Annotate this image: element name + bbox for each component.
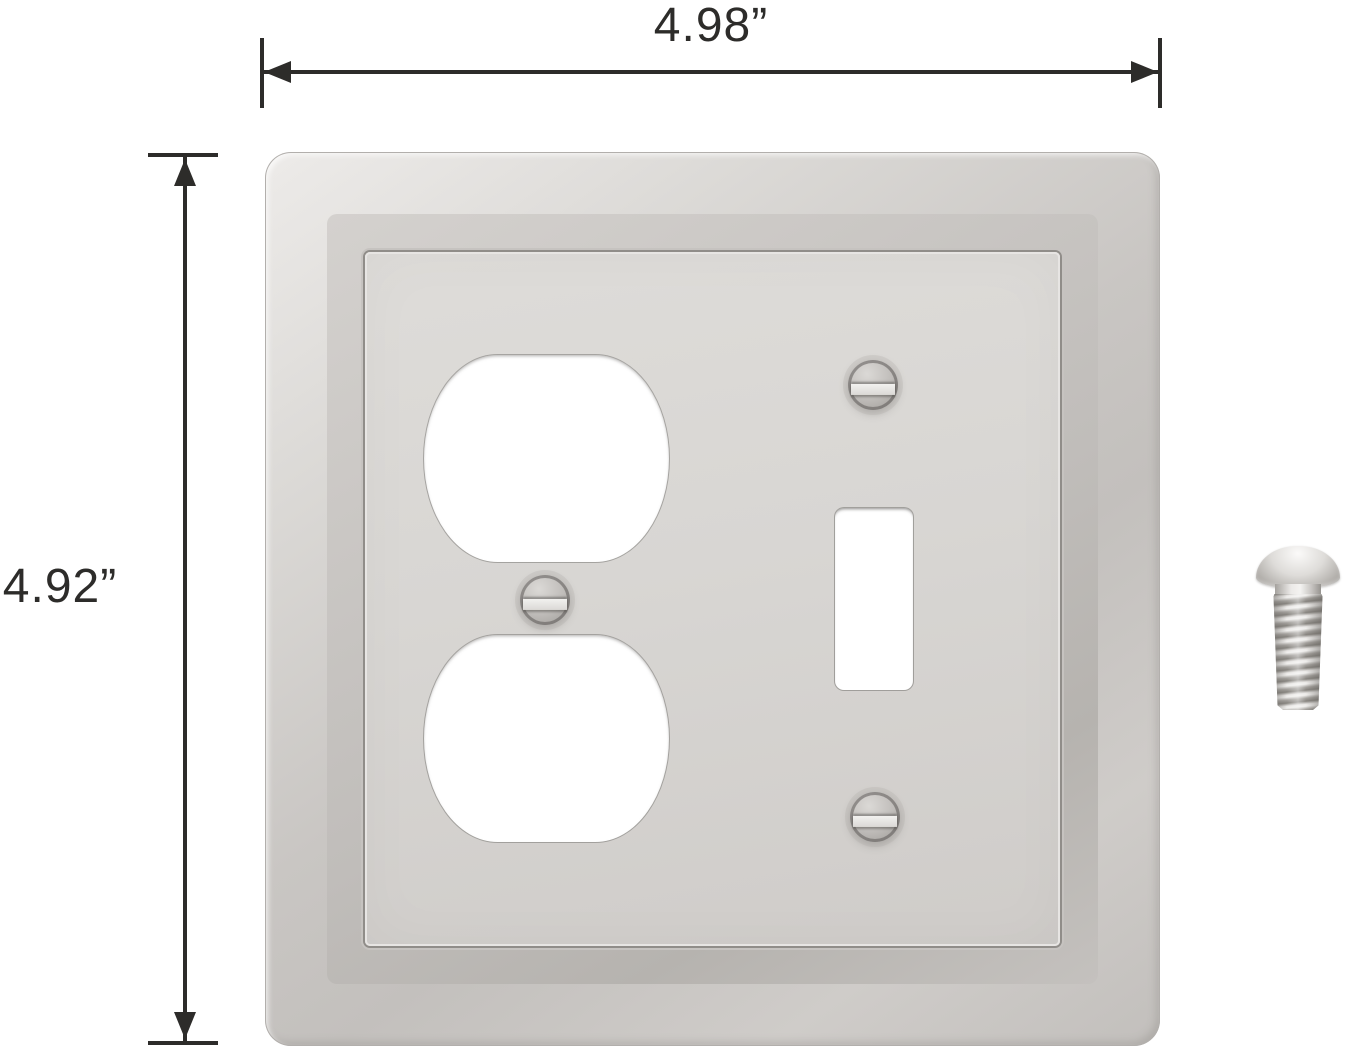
arrow-right-icon [1131, 61, 1158, 83]
arrow-up-icon [174, 159, 196, 186]
mounting-screw-threads [1273, 594, 1323, 710]
screw-slot [851, 384, 895, 395]
height-dimension-line [183, 157, 187, 1043]
width-dimension-line [264, 70, 1158, 74]
wall-plate [265, 152, 1160, 1046]
mounting-screw [1254, 546, 1342, 710]
toggle-switch-opening [835, 508, 913, 690]
toggle-top-screw [848, 360, 898, 410]
duplex-outlet-opening-bottom [424, 635, 669, 842]
height-dimension-tick-bottom [148, 1041, 218, 1045]
screw-slot [853, 816, 897, 827]
arrow-down-icon [174, 1012, 196, 1039]
toggle-bottom-screw [850, 792, 900, 842]
mounting-screw-head [1256, 546, 1340, 588]
width-dimension-tick-right [1158, 38, 1162, 108]
screw-slot [523, 599, 567, 610]
duplex-outlet-opening-top [424, 355, 669, 562]
arrow-left-icon [264, 61, 291, 83]
height-dimension-label: 4.92” [0, 563, 120, 611]
height-dimension-tick-top [148, 153, 218, 157]
product-dimension-diagram: 4.98” 4.92” [0, 0, 1345, 1049]
plate-inner-panel [365, 252, 1060, 946]
width-dimension-label: 4.98” [600, 2, 822, 50]
duplex-center-screw [520, 575, 570, 625]
